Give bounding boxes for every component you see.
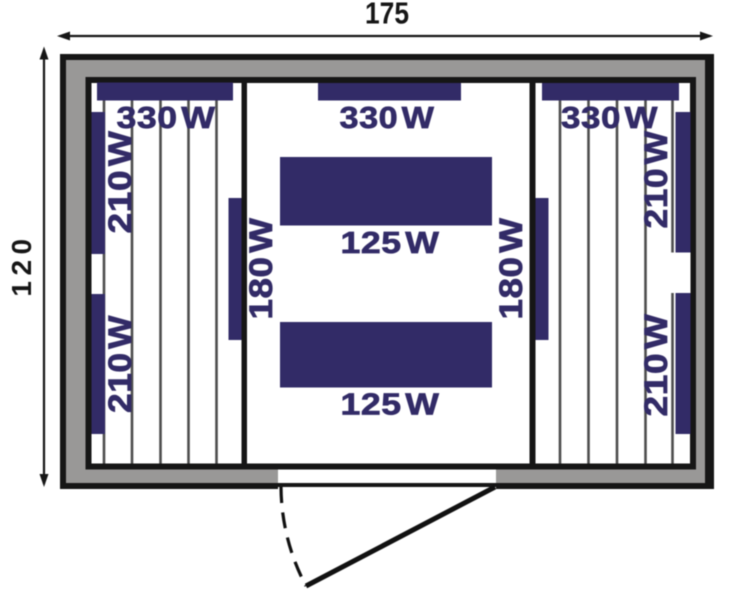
svg-text:180 W: 180 W [243, 217, 279, 319]
svg-text:125 W: 125 W [341, 387, 440, 422]
svg-text:210 W: 210 W [102, 130, 138, 233]
svg-text:175: 175 [365, 0, 409, 31]
svg-text:330 W: 330 W [117, 100, 216, 135]
svg-text:210 W: 210 W [638, 130, 674, 228]
svg-text:210 W: 210 W [638, 313, 674, 416]
svg-text:125 W: 125 W [341, 225, 440, 260]
svg-text:180 W: 180 W [493, 217, 529, 319]
svg-text:330 W: 330 W [340, 100, 435, 135]
svg-text:330 W: 330 W [561, 100, 658, 135]
svg-text:210 W: 210 W [102, 315, 138, 413]
svg-text:120: 120 [6, 233, 37, 296]
